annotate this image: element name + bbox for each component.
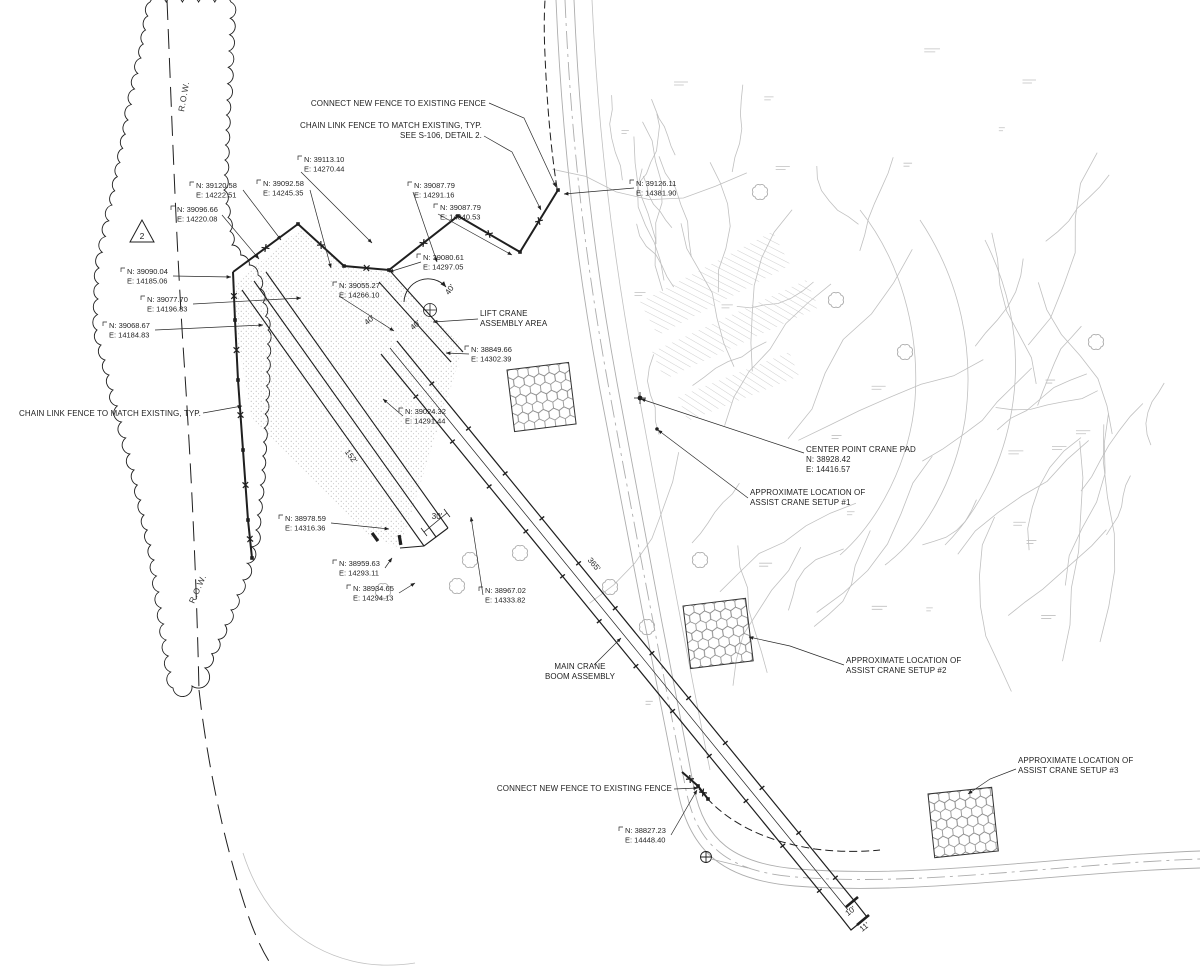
leader-line: [243, 190, 281, 240]
row-label-south: R.O.W.: [187, 573, 208, 605]
illegible-note-mark: [674, 82, 688, 85]
illegible-note-mark: [621, 131, 628, 134]
coordinate-easting: E: 14245.35: [263, 189, 303, 198]
fence-post: [342, 264, 346, 268]
illegible-note-mark: [759, 563, 772, 566]
coordinate-northing: N: 38827.23: [625, 826, 666, 835]
leader-line: [484, 136, 541, 210]
coordinate-callout: N: 39080.61E: 14297.05: [389, 253, 464, 272]
fence-post: [296, 222, 300, 226]
contour-line: [840, 210, 916, 555]
contour-scribble: [648, 354, 660, 434]
illegible-note-mark: [999, 128, 1005, 131]
contour-scribble: [922, 500, 976, 545]
trail-line: [243, 853, 415, 965]
contour-scribble: [958, 440, 1089, 554]
callout-assist-crane-setup-3-text: APPROXIMATE LOCATION OF: [1018, 756, 1133, 765]
illegible-note-mark: [926, 608, 932, 611]
leader-line: [594, 638, 621, 665]
callout-main-crane-boom-assembly-text: MAIN CRANE: [554, 662, 605, 671]
contour-scribble: [997, 374, 1087, 430]
leader-line: [301, 172, 372, 243]
callout-bracket: [333, 560, 337, 564]
illegible-note-mark: [1076, 431, 1090, 434]
contour-scribble: [860, 157, 893, 251]
callout-chain-link-fence-left: CHAIN LINK FENCE TO MATCH EXISTING, TYP.: [19, 406, 242, 418]
coordinate-easting: E: 14220.08: [177, 215, 217, 224]
leader-line: [385, 558, 392, 568]
site-plan-drawing: 2 R.O.W. R.O.W. 152' 30' 365' 40' 40' 40…: [0, 0, 1200, 966]
coordinate-easting: E: 14448.40: [625, 836, 665, 845]
fence-post: [250, 556, 254, 560]
contour-scribble: [659, 156, 691, 257]
coordinate-northing: N: 38967.02: [485, 586, 526, 595]
coordinate-northing: N: 39087.79: [440, 203, 481, 212]
contour-scribble: [788, 549, 843, 611]
illegible-note-mark: [722, 305, 733, 308]
boom-centerline: [390, 348, 848, 910]
fence-post: [236, 378, 240, 382]
callout-assist-crane-setup-2: APPROXIMATE LOCATION OFASSIST CRANE SETU…: [749, 637, 961, 675]
fence-post: [696, 784, 700, 788]
crane-pad-3-rect: [928, 787, 998, 857]
callout-bracket: [465, 346, 469, 350]
callout-chain-link-fence-top-text: CHAIN LINK FENCE TO MATCH EXISTING, TYP.: [300, 121, 482, 130]
contour-scribble: [638, 114, 659, 184]
callout-main-crane-boom-assembly: MAIN CRANEBOOM ASSEMBLY: [545, 638, 621, 681]
leader-line: [641, 399, 804, 453]
contour-scribble: [1038, 326, 1082, 405]
callout-center-point-crane-pad-text: E: 14416.57: [806, 465, 851, 474]
fence-post: [233, 318, 237, 322]
coordinate-northing: N: 39077.70: [147, 295, 188, 304]
coordinate-easting: E: 14333.82: [485, 596, 525, 605]
benchmark-tie: [711, 859, 748, 868]
existing-fence-north: [544, 0, 557, 188]
callout-center-point-crane-pad-text: CENTER POINT CRANE PAD: [806, 445, 916, 454]
crane-pad-3: [928, 787, 998, 857]
contour-line: [885, 220, 968, 565]
illegible-note-mark: [1008, 451, 1023, 454]
coordinate-callout: N: 38959.63E: 14293.11: [333, 558, 392, 578]
crane-pad-2: [683, 598, 753, 668]
coordinate-easting: E: 14291.16: [414, 191, 454, 200]
bush-symbol: [449, 578, 464, 593]
coordinate-easting: E: 14381.90: [636, 189, 676, 198]
coordinate-northing: N: 39092.58: [263, 179, 304, 188]
callout-connect-fence-bottom: CONNECT NEW FENCE TO EXISTING FENCE: [497, 784, 698, 793]
fence-post: [241, 448, 245, 452]
coordinate-callout: N: 39113.10E: 14270.44: [298, 155, 372, 243]
fence-x-tick: [423, 239, 424, 247]
callout-lift-crane-assembly-area: LIFT CRANEASSEMBLY AREA: [433, 309, 548, 328]
riprap-hatch-bands: [640, 232, 819, 422]
coordinate-easting: E: 14294.13: [353, 594, 393, 603]
fence-x-tick: [686, 779, 694, 780]
leader-line: [671, 790, 697, 835]
coordinate-callout: N: 39126.11E: 14381.90: [564, 179, 676, 198]
coordinate-easting: E: 14297.05: [423, 263, 463, 272]
fence-post: [706, 797, 710, 801]
illegible-note-mark: [646, 701, 653, 704]
bush-symbol: [462, 552, 477, 567]
contour-scribble: [1038, 282, 1112, 434]
benchmark-symbol: [701, 852, 749, 869]
illegible-note-mark: [1052, 446, 1066, 449]
illegible-note-mark: [904, 163, 913, 166]
callout-chain-link-fence-left-text: CHAIN LINK FENCE TO MATCH EXISTING, TYP.: [19, 409, 201, 418]
callout-assist-crane-setup-1-text: APPROXIMATE LOCATION OF: [750, 488, 865, 497]
contour-scribble: [1106, 476, 1130, 535]
center-point-cross: [634, 392, 646, 404]
coordinate-easting: E: 14184.83: [109, 331, 149, 340]
leader-line: [399, 583, 415, 593]
contour-scribble: [732, 85, 743, 172]
coordinate-easting: E: 14340.53: [440, 213, 480, 222]
leader-line: [413, 192, 437, 262]
new-work-layer: 2: [93, 0, 999, 966]
coordinate-easting: E: 14291.44: [405, 417, 445, 426]
contour-scribble: [788, 249, 912, 438]
leader-line: [564, 188, 634, 194]
illegible-note-mark: [872, 606, 887, 609]
contour-scribble: [817, 166, 859, 224]
illegible-note-mark: [764, 97, 773, 100]
callout-bracket: [279, 515, 283, 519]
illegible-note-mark: [1013, 522, 1025, 525]
illegible-note-mark: [634, 293, 645, 296]
revision-triangle-number: 2: [140, 231, 145, 241]
callout-bracket: [171, 206, 175, 210]
contour-scribble: [1146, 383, 1164, 445]
contour-scribble: [1028, 153, 1097, 345]
fence-x-tick: [265, 244, 266, 252]
bush-symbol: [1088, 334, 1103, 349]
callout-assist-crane-setup-3-text: ASSIST CRANE SETUP #3: [1018, 766, 1119, 775]
callout-lift-crane-assembly-area-text: LIFT CRANE: [480, 309, 528, 318]
illegible-note-mark: [832, 435, 842, 438]
callout-bracket: [190, 182, 194, 186]
callouts-group: N: 39113.10E: 14270.44N: 39120.58E: 1422…: [19, 99, 1133, 845]
contour-scribble: [720, 503, 856, 592]
illegible-note-mark: [1027, 541, 1037, 544]
callout-bracket: [257, 180, 261, 184]
contour-scribble: [975, 259, 1023, 347]
leader-line: [203, 406, 242, 413]
illegible-note-mark: [924, 49, 940, 52]
revision-triangle-marker: 2: [130, 220, 154, 242]
contour-scribble: [1063, 441, 1083, 661]
coordinate-easting: E: 14196.83: [147, 305, 187, 314]
coordinate-northing: N: 39024.32: [405, 407, 446, 416]
callout-bracket: [434, 204, 438, 208]
coordinate-northing: N: 38978.59: [285, 514, 326, 523]
contour-scribble: [992, 233, 1036, 384]
bush-symbol: [828, 292, 843, 307]
bush-symbol: [602, 579, 617, 594]
fence-post: [556, 188, 560, 192]
contour-scribble: [1008, 530, 1106, 616]
coordinate-northing: N: 39120.58: [196, 181, 237, 190]
contour-scribble: [817, 456, 933, 612]
callout-assist-crane-setup-2-text: ASSIST CRANE SETUP #2: [846, 666, 947, 675]
contour-scribble: [1046, 175, 1110, 241]
callout-bracket: [103, 322, 107, 326]
coordinate-callout: N: 39096.66E: 14220.08: [171, 205, 259, 259]
coordinate-callout: N: 39090.04E: 14185.06: [121, 267, 231, 286]
illegible-note-mark: [1022, 80, 1036, 83]
existing-fence-south: [699, 789, 880, 851]
callout-assist-crane-setup-1-text: ASSIST CRANE SETUP #1: [750, 498, 851, 507]
coordinate-easting: E: 14185.06: [127, 277, 167, 286]
coordinate-northing: N: 39087.79: [414, 181, 455, 190]
leader-line: [658, 430, 748, 498]
coordinate-northing: N: 39068.67: [109, 321, 150, 330]
contour-scribble: [1081, 404, 1143, 492]
coordinate-northing: N: 39080.61: [423, 253, 464, 262]
chain-link-fence-line: [682, 772, 708, 799]
callout-connect-fence-top: CONNECT NEW FENCE TO EXISTING FENCE: [311, 99, 556, 187]
plan-canvas: 2 R.O.W. R.O.W. 152' 30' 365' 40' 40' 40…: [0, 0, 1200, 966]
callout-chain-link-fence-top-text: SEE S-106, DETAIL 2.: [400, 131, 482, 140]
coordinate-northing: N: 39113.10: [304, 155, 344, 164]
callout-bracket: [298, 156, 302, 160]
callout-assist-crane-setup-3: APPROXIMATE LOCATION OFASSIST CRANE SETU…: [968, 756, 1133, 794]
coordinate-northing: N: 38849.66: [471, 345, 512, 354]
coordinate-easting: E: 14316.36: [285, 524, 325, 533]
callout-main-crane-boom-assembly-text: BOOM ASSEMBLY: [545, 672, 616, 681]
coordinate-northing: N: 39126.11: [636, 179, 676, 188]
row-centerline-dashed-lower: [199, 690, 272, 966]
contour-scribble: [692, 483, 739, 543]
contour-scribble: [814, 531, 870, 627]
callout-bracket: [141, 296, 145, 300]
fence-post: [518, 250, 522, 254]
callout-bracket: [347, 585, 351, 589]
callout-bracket: [417, 254, 421, 258]
coordinate-easting: E: 14222.51: [196, 191, 236, 200]
fence-post: [246, 518, 250, 522]
mat-end-closure: [400, 528, 448, 548]
coordinate-callout: N: 39087.79E: 14340.53: [434, 203, 512, 255]
coordinate-easting: E: 14266.10: [339, 291, 379, 300]
callout-bracket: [619, 827, 623, 831]
coordinate-northing: N: 39090.04: [127, 267, 168, 276]
callout-assist-crane-setup-2-text: APPROXIMATE LOCATION OF: [846, 656, 961, 665]
bush-symbol: [897, 344, 912, 359]
crane-pad-2-rect: [683, 598, 753, 668]
illegible-note-mark: [1041, 615, 1055, 618]
contour-scribble: [1065, 413, 1108, 585]
coordinate-callout: N: 38934.65E: 14294.13: [347, 583, 415, 603]
callout-bracket: [408, 182, 412, 186]
leader-line: [433, 319, 478, 322]
contour-scribble: [652, 99, 676, 155]
bush-symbol: [752, 184, 767, 199]
contour-scribble: [980, 517, 1012, 692]
leader-line: [471, 517, 483, 595]
bush-symbol: [512, 545, 527, 560]
crane-pad-1-rect: [507, 362, 576, 431]
leader-line: [749, 637, 844, 665]
coordinate-easting: E: 14270.44: [304, 165, 344, 174]
illegible-note-mark: [847, 512, 855, 515]
bush-symbol: [639, 619, 654, 634]
bush-symbol: [692, 552, 707, 567]
contour-scribble: [610, 95, 623, 180]
callout-connect-fence-bottom-text: CONNECT NEW FENCE TO EXISTING FENCE: [497, 784, 672, 793]
callout-lift-crane-assembly-area-text: ASSEMBLY AREA: [480, 319, 548, 328]
dim-30: 30': [432, 512, 443, 521]
callout-bracket: [121, 268, 125, 272]
coordinate-northing: N: 38959.63: [339, 559, 380, 568]
boom-edge: [381, 354, 840, 916]
coordinate-easting: E: 14302.39: [471, 355, 511, 364]
callout-center-point-crane-pad: CENTER POINT CRANE PADN: 38928.42E: 1441…: [641, 399, 916, 474]
illegible-note-mark: [872, 386, 886, 389]
callout-bracket: [630, 180, 634, 184]
dim-40-arc: 40': [443, 282, 457, 296]
coordinate-northing: N: 38934.65: [353, 584, 394, 593]
crane-pad-1: [507, 362, 576, 431]
callout-connect-fence-top-text: CONNECT NEW FENCE TO EXISTING FENCE: [311, 99, 486, 108]
contour-line: [945, 240, 1016, 545]
fence-x-tick: [699, 792, 707, 793]
leader-line: [173, 276, 231, 277]
coordinate-easting: E: 14293.11: [339, 569, 379, 578]
illegible-note-mark: [776, 167, 790, 170]
row-label-north: R.O.W.: [176, 81, 191, 113]
coordinate-northing: N: 39055.27: [339, 281, 380, 290]
coordinate-northing: N: 39096.66: [177, 205, 218, 214]
boom-edge: [397, 341, 856, 903]
callout-center-point-crane-pad-text: N: 38928.42: [806, 455, 851, 464]
dim-365: 365': [586, 556, 603, 574]
